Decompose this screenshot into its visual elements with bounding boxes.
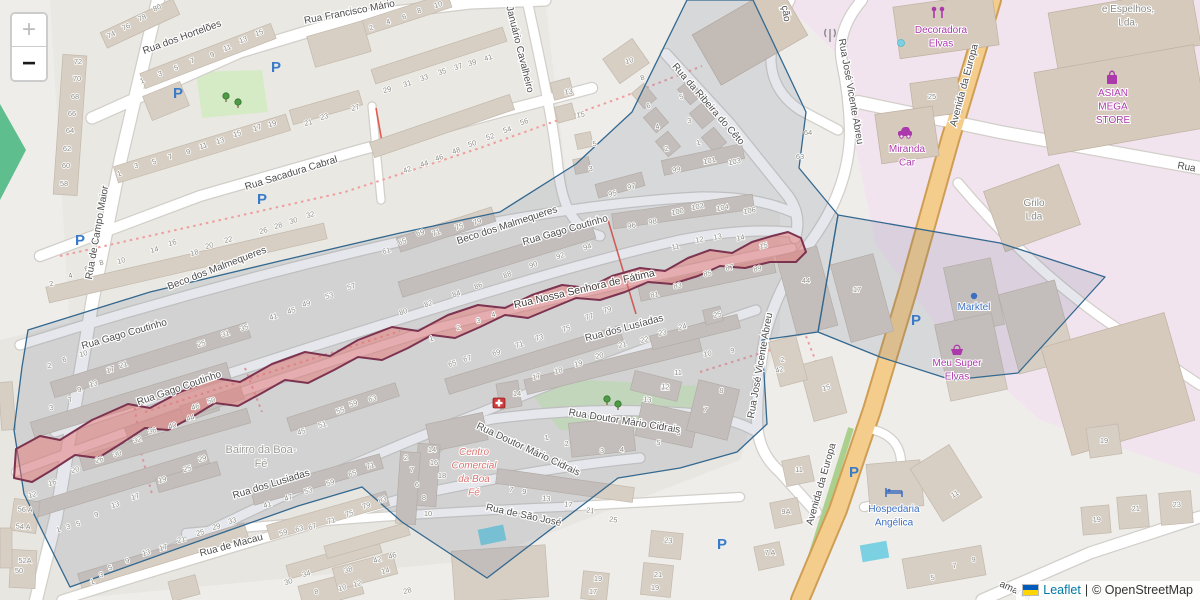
building — [649, 530, 684, 559]
map-attribution: Leaflet | © OpenStreetMap — [1016, 581, 1200, 600]
leaflet-link[interactable]: Leaflet — [1043, 583, 1081, 597]
building — [0, 528, 12, 568]
building — [1081, 505, 1111, 535]
pharmacy-icon — [493, 398, 505, 408]
building — [1117, 495, 1150, 529]
building — [581, 571, 610, 600]
fountain-dot-icon — [898, 40, 905, 47]
map-container: PPPPPPP747678801357911131572706866646260… — [0, 0, 1200, 600]
map-canvas[interactable]: PPPPPPP747678801357911131572706866646260… — [0, 0, 1200, 600]
zoom-in-button[interactable]: + — [12, 14, 46, 47]
building — [575, 132, 594, 150]
attribution-separator: | — [1085, 583, 1088, 597]
leaflet-zoom-control: + − — [10, 12, 48, 82]
building — [1159, 491, 1194, 526]
zoom-out-button[interactable]: − — [12, 47, 46, 80]
building — [770, 497, 803, 528]
ukraine-flag-icon — [1022, 584, 1039, 596]
building — [9, 549, 37, 588]
building — [640, 563, 673, 598]
building — [1086, 424, 1122, 458]
openstreetmap-link[interactable]: © OpenStreetMap — [1092, 583, 1193, 597]
dot-icon — [971, 293, 977, 299]
building — [754, 542, 784, 571]
building — [782, 455, 815, 486]
